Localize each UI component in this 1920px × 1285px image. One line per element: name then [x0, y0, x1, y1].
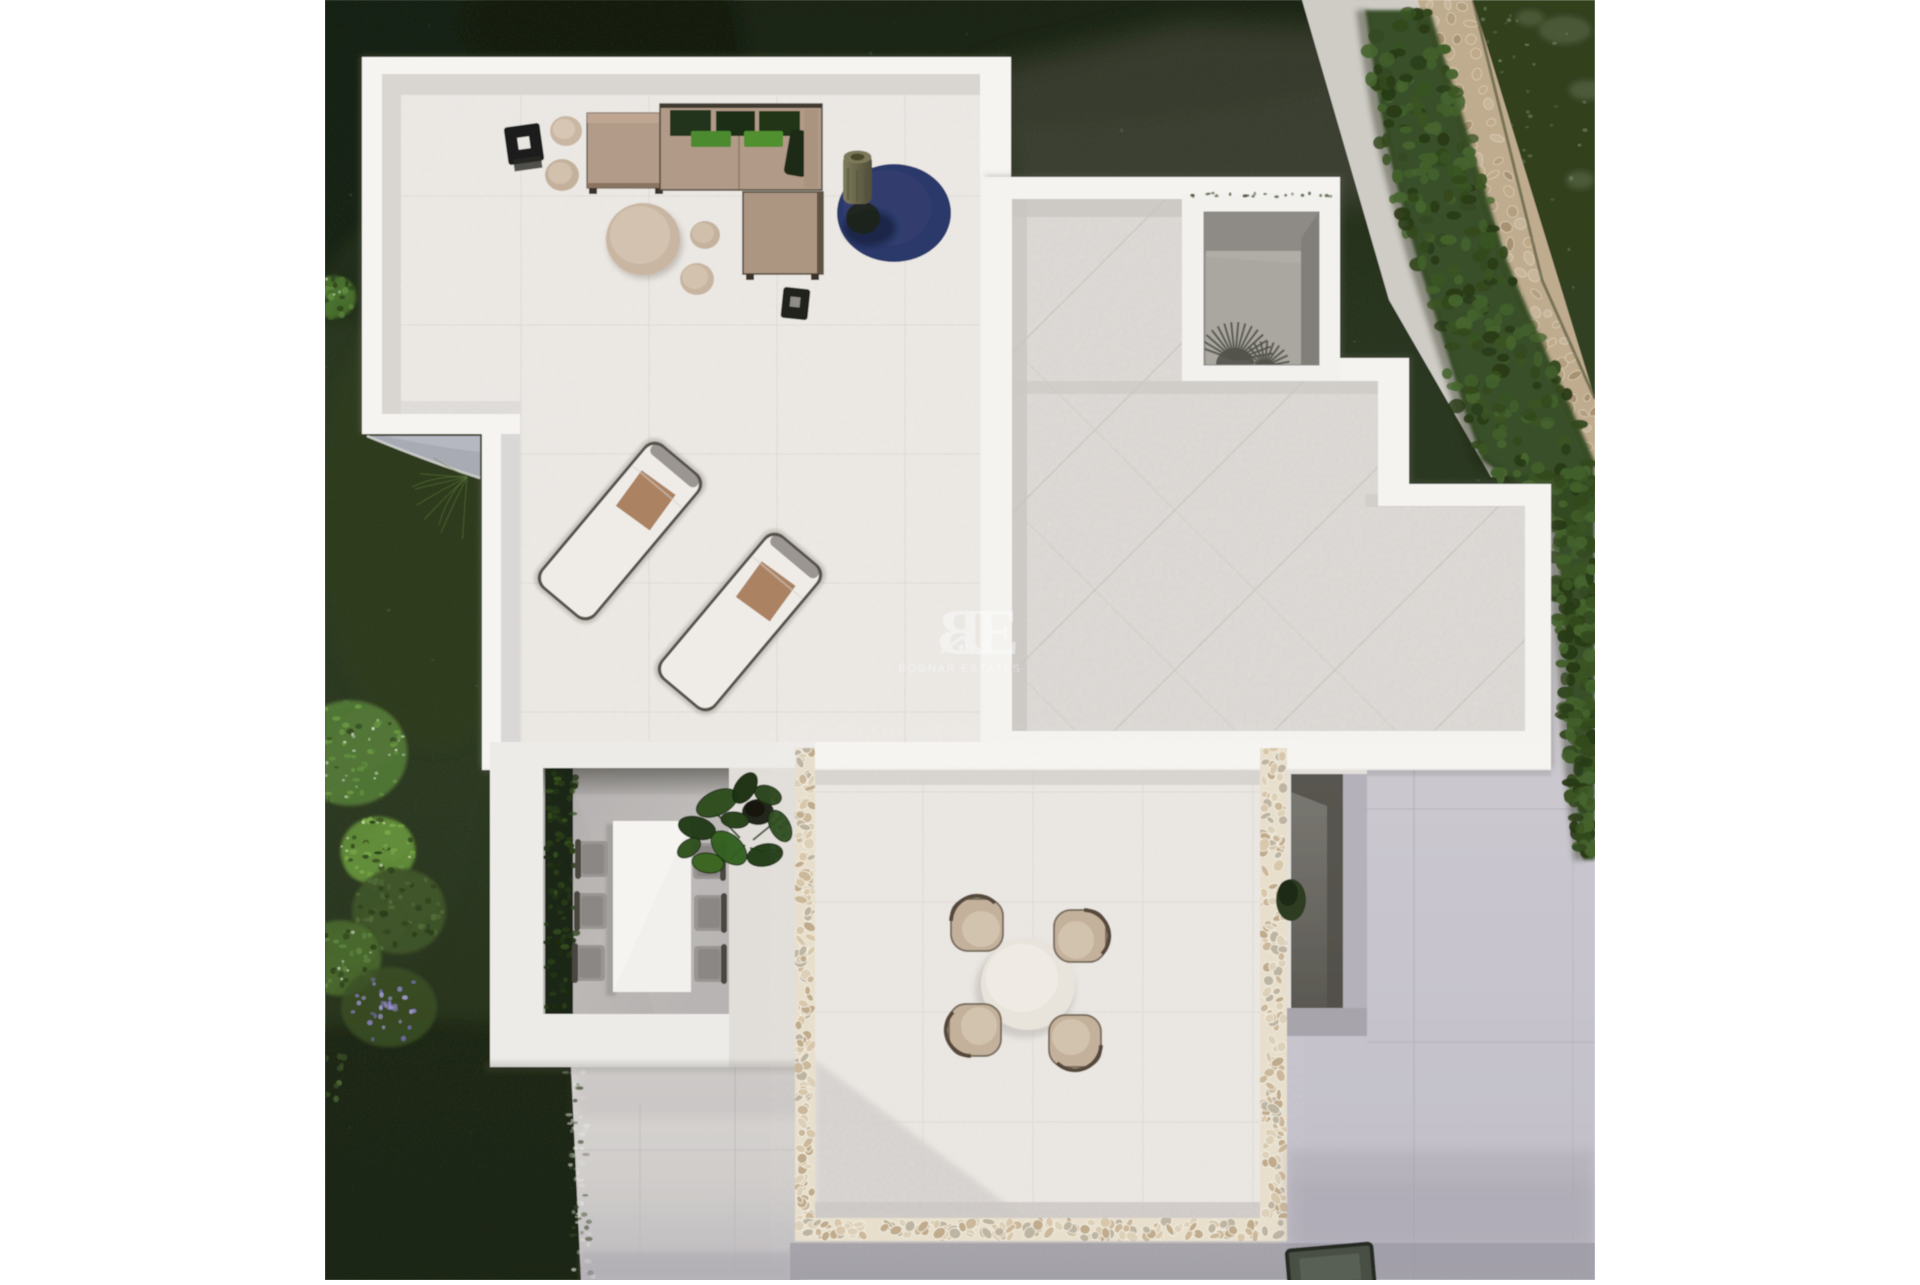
svg-text:E: E	[975, 596, 1019, 669]
svg-text:BOGNAR ESTATES: BOGNAR ESTATES	[898, 663, 1021, 675]
